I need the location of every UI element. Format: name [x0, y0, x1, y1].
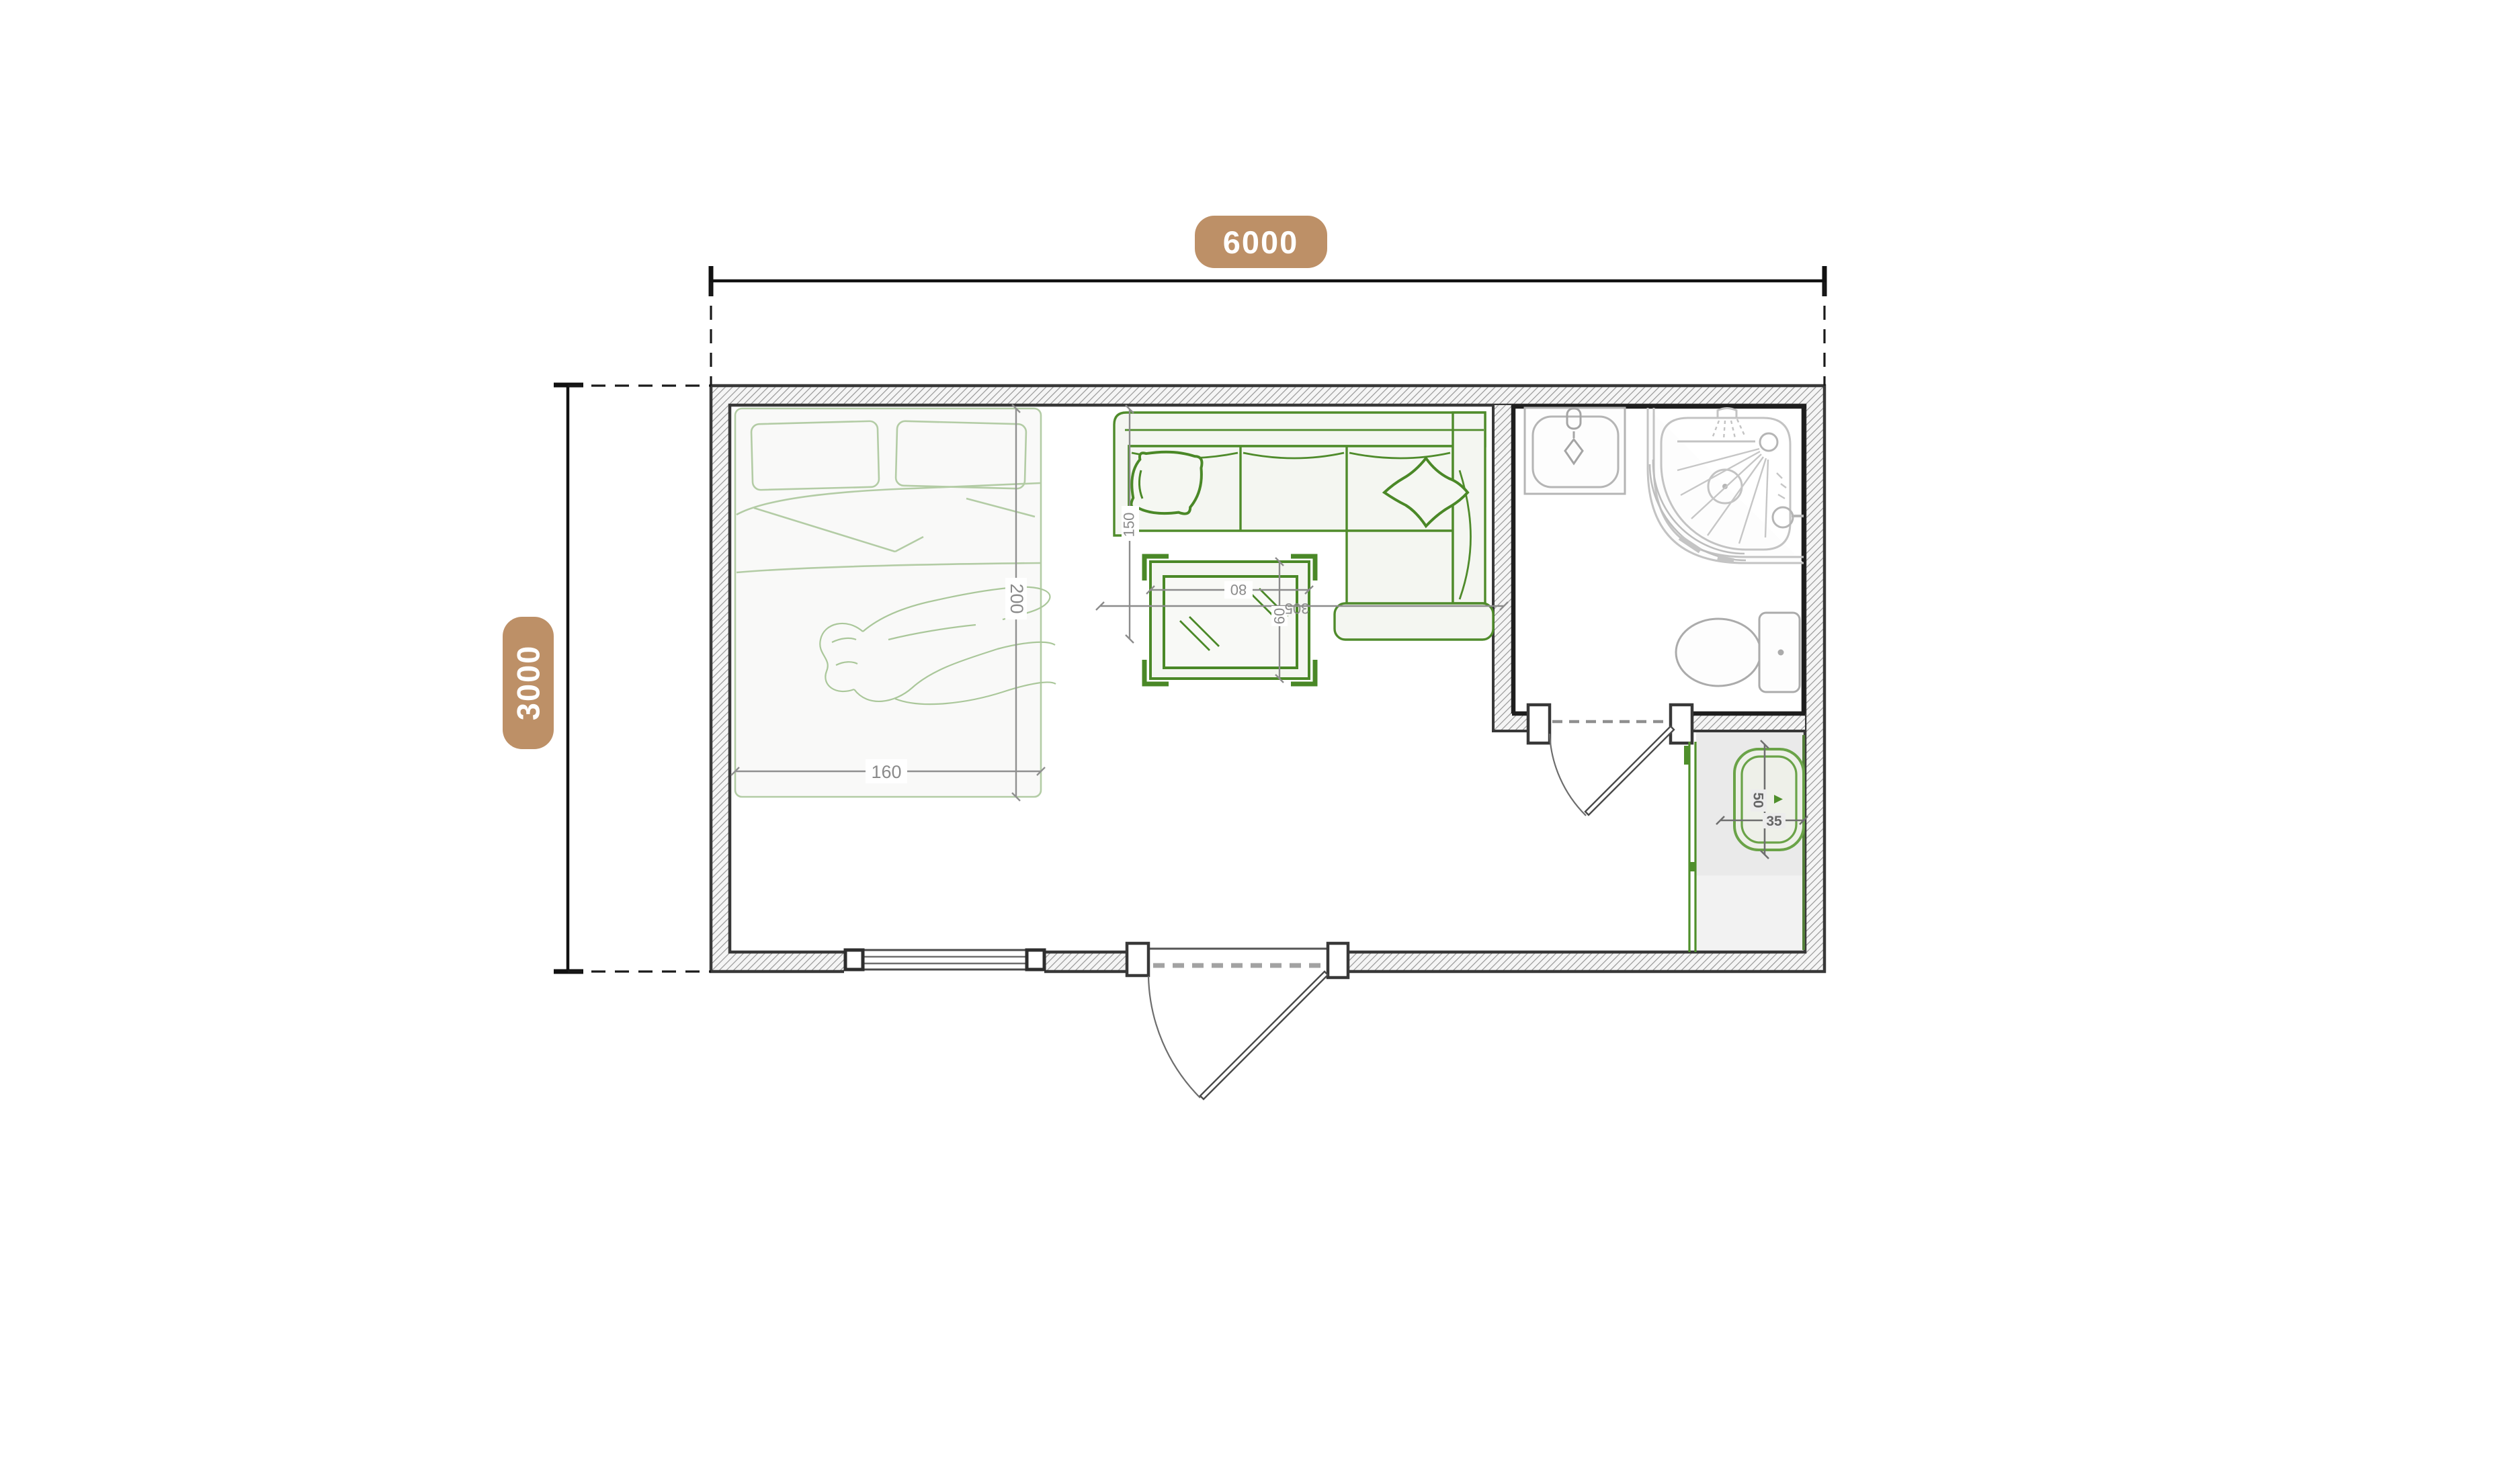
svg-text:160: 160 [871, 762, 901, 782]
svg-text:50: 50 [1751, 792, 1766, 808]
svg-text:80: 80 [1230, 581, 1247, 598]
svg-text:200: 200 [1007, 583, 1027, 613]
svg-text:35: 35 [1766, 814, 1782, 829]
svg-text:305: 305 [1285, 600, 1310, 617]
svg-text:150: 150 [1121, 513, 1138, 537]
svg-text:6000: 6000 [1223, 224, 1299, 260]
svg-text:3000: 3000 [511, 645, 546, 721]
